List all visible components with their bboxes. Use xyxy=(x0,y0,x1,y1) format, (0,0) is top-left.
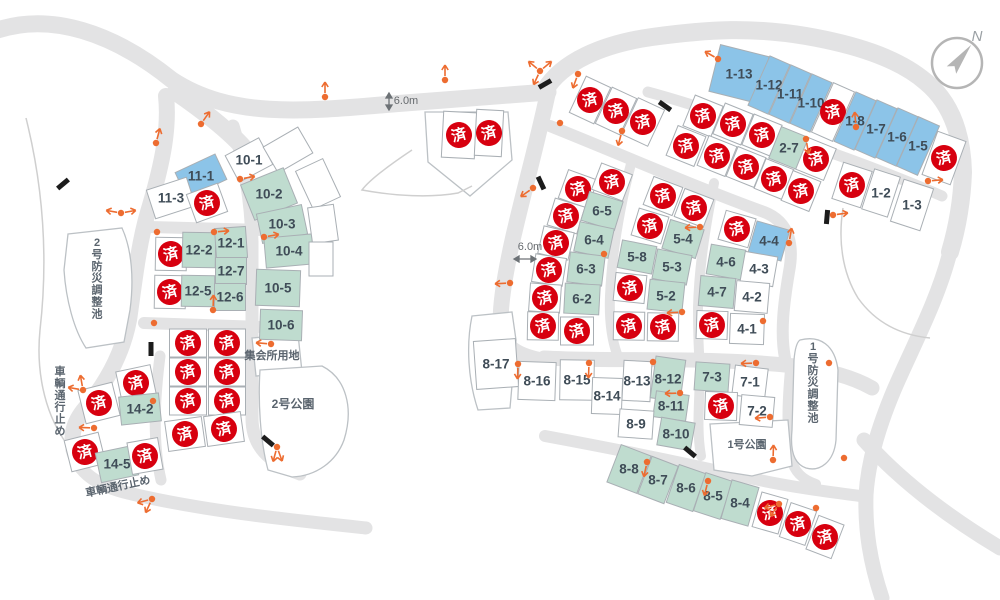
lot-number-label: 1-2 xyxy=(871,186,891,201)
streetlight-icon xyxy=(442,65,448,83)
lot-sold[interactable]: 済 xyxy=(613,310,645,342)
lot-number-label: 10-6 xyxy=(267,318,295,333)
lot-number-label: 1-5 xyxy=(908,139,928,154)
lot-number-label: 1-13 xyxy=(725,67,753,82)
lot-number-label: 2-7 xyxy=(779,141,799,156)
lot-8-10[interactable]: 8-10 xyxy=(657,417,695,450)
lot-sold[interactable]: 済 xyxy=(705,390,738,422)
road xyxy=(144,323,262,327)
lot-number-label: 8-11 xyxy=(658,399,685,414)
meeting-hall-site-label: 集会所用地 xyxy=(244,348,300,362)
lot-shape xyxy=(308,204,339,243)
lot-sold[interactable]: 済 xyxy=(631,208,669,244)
lot-sold[interactable]: 済 xyxy=(170,327,207,359)
lot-number-label: 5-8 xyxy=(627,250,647,265)
lot-number-label: 8-13 xyxy=(623,374,651,389)
lot-number-label: 1-3 xyxy=(902,198,922,213)
lot-sold[interactable]: 済 xyxy=(613,272,647,304)
lot-number-label: 5-3 xyxy=(662,260,682,275)
lot-number-label: 10-5 xyxy=(264,281,292,296)
lot-number-label: 14-5 xyxy=(103,457,131,472)
lot-number-label: 1-6 xyxy=(887,130,907,145)
lot-number-label: 6-5 xyxy=(592,204,612,219)
streetlight-icon xyxy=(150,398,156,404)
lot-number-label: 12-6 xyxy=(216,290,244,305)
road xyxy=(0,24,548,110)
lot-4-7[interactable]: 4-7 xyxy=(698,276,735,309)
lot-6-2[interactable]: 6-2 xyxy=(564,283,601,315)
lot-number-label: 11-1 xyxy=(188,169,215,184)
compass-needle-icon xyxy=(947,41,976,74)
streetlight-icon xyxy=(760,318,766,324)
lot-7-2[interactable]: 7-2 xyxy=(739,395,774,428)
lot-10-5[interactable]: 10-5 xyxy=(255,269,300,307)
lot-number-label: 6-3 xyxy=(576,262,596,277)
lot-sold[interactable]: 済 xyxy=(529,282,562,314)
lot-sold[interactable]: 済 xyxy=(532,254,567,287)
lot-number-label: 8-14 xyxy=(593,389,621,404)
lot-number-label: 4-1 xyxy=(737,322,757,337)
lot-number-label: 11-3 xyxy=(158,191,185,206)
lot-7-3[interactable]: 7-3 xyxy=(694,362,730,392)
lot[interactable] xyxy=(309,242,333,276)
retaining-wall-icon xyxy=(56,178,70,191)
lot-number-label: 10-3 xyxy=(268,217,296,232)
lot-sold[interactable]: 済 xyxy=(170,356,207,388)
lot-number-label: 4-4 xyxy=(759,234,779,249)
park-1-label: 1号公園 xyxy=(727,438,766,451)
lot-number-label: 4-3 xyxy=(749,262,769,277)
lot-number-label: 12-2 xyxy=(185,243,212,258)
subdivision-lot-map: 1-131-121-111-10済1-81-71-61-5済済1-21-3済済済… xyxy=(0,0,1000,600)
lot-14-2[interactable]: 14-2 xyxy=(119,393,162,425)
lot-number-label: 5-2 xyxy=(656,289,676,304)
lot-4-1[interactable]: 4-1 xyxy=(729,313,764,344)
streetlight-icon xyxy=(557,120,563,126)
lot-number-label: 8-16 xyxy=(523,374,551,389)
lot-number-label: 14-2 xyxy=(126,402,153,417)
compass-north-label: N xyxy=(972,28,983,45)
retaining-wall-icon xyxy=(824,210,830,224)
width-arrow-horizontal xyxy=(514,256,536,262)
road xyxy=(866,252,950,598)
lot-sold[interactable]: 済 xyxy=(209,327,246,359)
lot-shape xyxy=(263,127,313,173)
lot-number-label: 6-4 xyxy=(584,233,604,248)
pond-2-label: 2号防災調整池 xyxy=(91,237,104,320)
lot-sold[interactable]: 済 xyxy=(696,309,728,341)
lot-sold[interactable]: 済 xyxy=(170,385,207,417)
road-width-label: 6.0m xyxy=(394,95,418,107)
streetlight-icon xyxy=(154,229,160,235)
road-width-label: 6.0m xyxy=(518,241,542,253)
lot-sold[interactable]: 済 xyxy=(561,315,594,347)
lot-12-7[interactable]: 12-7 xyxy=(216,258,247,285)
lot-number-label: 12-7 xyxy=(217,264,244,279)
streetlight-icon xyxy=(68,375,87,394)
lot-number-label: 4-6 xyxy=(716,255,736,270)
lot[interactable] xyxy=(296,159,341,210)
lot-sold[interactable]: 済 xyxy=(441,111,476,159)
lot-number-label: 7-1 xyxy=(740,375,760,390)
lot-number-label: 7-3 xyxy=(702,370,722,385)
streetlight-icon xyxy=(650,359,656,365)
pond-1-label: 1号防災調整池 xyxy=(807,341,820,424)
lot-sold[interactable]: 済 xyxy=(718,210,756,247)
lot-number-label: 4-7 xyxy=(707,285,727,300)
lot-number-label: 8-17 xyxy=(482,357,509,372)
retaining-wall-icon xyxy=(536,176,546,191)
lot[interactable] xyxy=(263,127,313,173)
lot-12-5[interactable]: 12-5 xyxy=(181,275,215,307)
lot-number-label: 8-10 xyxy=(662,427,689,442)
lot-shape xyxy=(309,242,333,276)
lot-number-label: 12-5 xyxy=(184,284,212,299)
lot[interactable] xyxy=(308,204,339,243)
lot-number-label: 10-2 xyxy=(255,187,282,202)
lot-sold[interactable]: 済 xyxy=(647,311,679,343)
park-2-label: 2号公園 xyxy=(272,396,315,411)
streetlight-icon xyxy=(79,424,97,431)
lot-5-2[interactable]: 5-2 xyxy=(647,279,685,312)
streetlight-icon xyxy=(826,360,832,366)
lot-number-label: 8-9 xyxy=(626,417,646,432)
lot-8-9[interactable]: 8-9 xyxy=(618,409,654,439)
streetlight-icon xyxy=(106,207,137,216)
lot-number-label: 4-2 xyxy=(742,290,762,305)
lot-number-label: 5-4 xyxy=(673,232,693,247)
streetlight-icon xyxy=(813,505,819,511)
lot-sold[interactable]: 済 xyxy=(165,417,206,452)
lot-number-label: 12-1 xyxy=(217,236,245,251)
lot-number-label: 1-7 xyxy=(866,122,886,137)
streetlight-icon xyxy=(322,82,328,100)
retaining-wall-icon xyxy=(149,342,154,356)
lot-number-label: 8-7 xyxy=(648,473,668,488)
lot-sold[interactable]: 済 xyxy=(204,412,245,447)
lot-sold[interactable]: 済 xyxy=(527,310,559,342)
lot-8-13[interactable]: 8-13 xyxy=(622,360,652,401)
streetlight-icon xyxy=(151,320,157,326)
lot-sold[interactable]: 済 xyxy=(209,356,246,388)
lot-number-label: 8-4 xyxy=(730,496,750,511)
streetlight-icon xyxy=(830,210,848,218)
lot-8-14[interactable]: 8-14 xyxy=(591,377,622,414)
streetlight-icon xyxy=(841,455,847,461)
compass: N xyxy=(932,28,983,88)
road-closed-label: 車輌通行止め xyxy=(54,364,66,437)
lot-8-16[interactable]: 8-16 xyxy=(518,361,556,400)
lot-number-label: 10-1 xyxy=(235,153,263,168)
lot-12-2[interactable]: 12-2 xyxy=(182,232,216,268)
lot-8-11[interactable]: 8-11 xyxy=(653,391,689,421)
lot-shape xyxy=(296,159,341,210)
lot-10-4[interactable]: 10-4 xyxy=(264,234,314,268)
lot-6-3[interactable]: 6-3 xyxy=(567,252,605,286)
lot-4-2[interactable]: 4-2 xyxy=(734,281,769,314)
road xyxy=(864,440,1000,548)
lot-5-8[interactable]: 5-8 xyxy=(617,240,657,274)
lot-number-label: 8-6 xyxy=(676,481,696,496)
lot-10-6[interactable]: 10-6 xyxy=(259,309,302,340)
lot-number-label: 8-8 xyxy=(619,462,639,477)
lot-number-label: 1-10 xyxy=(797,96,824,111)
lot-4-6[interactable]: 4-6 xyxy=(706,244,746,280)
lot-number-label: 6-2 xyxy=(572,292,592,307)
streetlight-icon xyxy=(601,251,607,257)
lot-sold[interactable]: 済 xyxy=(473,109,505,156)
lot-number-label: 8-12 xyxy=(654,372,681,387)
lot-12-6[interactable]: 12-6 xyxy=(215,284,246,311)
lot-number-label: 10-4 xyxy=(275,244,303,259)
lot-8-17[interactable]: 8-17 xyxy=(473,339,518,390)
lot-sold[interactable]: 済 xyxy=(127,438,163,475)
